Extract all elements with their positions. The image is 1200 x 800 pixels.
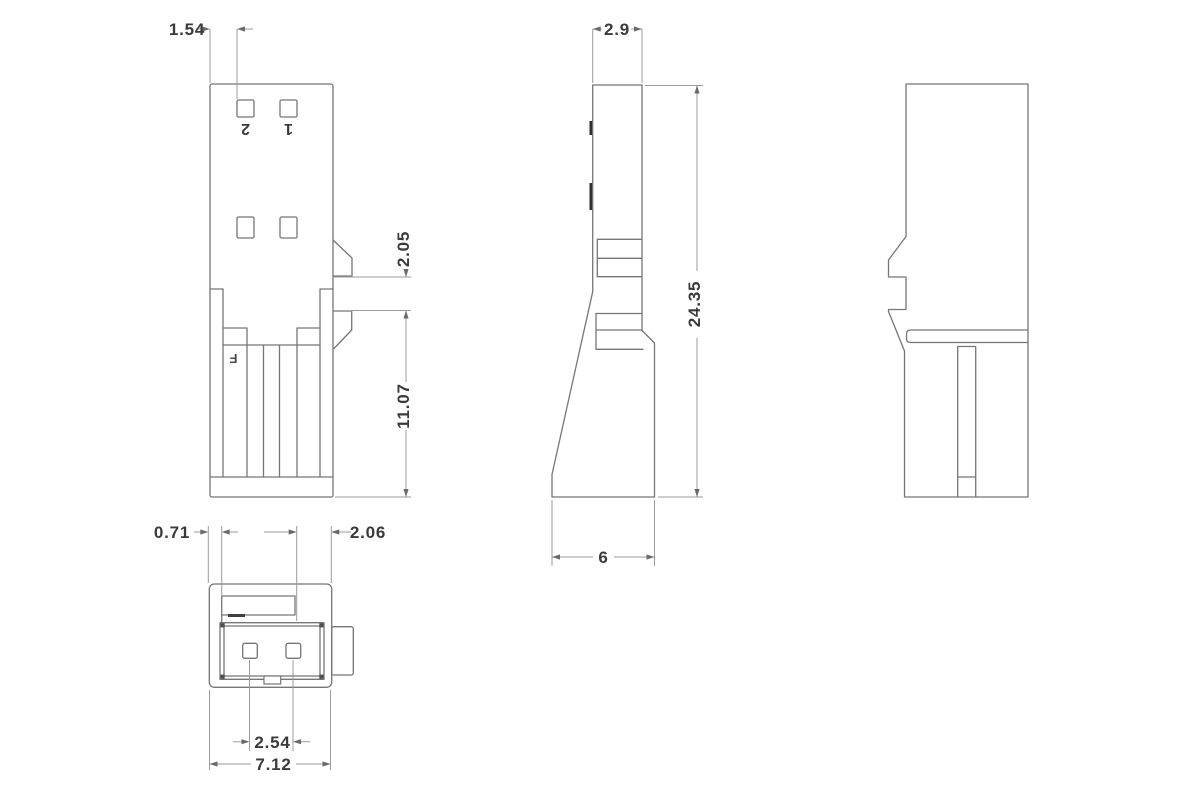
rear-retention-band [907,330,1028,343]
bottom-latch-recess [222,596,295,623]
dim-side-bottom-depth: 6 [552,500,655,567]
dim-0-71-arrow-right [222,529,230,534]
dim-1-54-text: 1.54 [169,20,205,39]
front-pin1-hole [280,100,297,117]
bottom-corner-post-tl [221,623,225,627]
dim-2-06-arrow-left [289,529,297,534]
front-contact-slots [247,345,297,477]
front-latch-upper [333,240,352,276]
dim-6-arrow-right [647,554,655,559]
dim-11-07-arrow-bottom [403,489,408,497]
dim-24-35-arrow-bottom [694,489,699,497]
dim-front-latch-gap-and-height: 2.05 11.07 [333,231,413,497]
mold-mark-label: F [229,351,237,366]
bottom-pin2-cavity [243,643,258,658]
bottom-corner-post-br [319,675,323,679]
dim-6-arrow-left [552,554,560,559]
dim-0-71-text: 0.71 [154,523,190,542]
dim-7-12-arrow-right [323,761,331,766]
bottom-corner-post-tr [319,623,323,627]
dim-bottom-pin-pitch: 2.54 [233,660,310,752]
bottom-pin1-cavity [286,643,301,658]
bottom-view [209,584,353,687]
dim-side-top-width: 2.9 [593,20,642,83]
dim-24-35-arrow-top [694,86,699,94]
front-mid-hole-left [237,217,254,238]
dim-2-06-arrow-right [331,529,339,534]
dim-1-54-extension-lines [210,29,237,99]
dim-1-54-arrow-right [237,26,245,31]
dim-2-06-text: 2.06 [350,523,386,542]
front-body-outline [210,84,333,497]
pin2-label: 2 [241,120,250,137]
dim-6-text: 6 [598,548,608,567]
pin1-label: 1 [284,120,293,137]
side-latch-box-lower [596,314,643,350]
front-inner-tabs [223,328,320,345]
dim-24-35-text: 24.35 [685,281,704,328]
rear-view [889,84,1029,497]
dim-2-54-arrow-left [242,739,250,744]
dim-2-05-text: 2.05 [394,231,413,267]
dim-11-07-text: 11.07 [394,383,413,429]
front-view: 2 1 F [210,84,352,497]
bottom-socket-outer [220,623,324,680]
dim-2-9-text: 2.9 [604,20,630,39]
bottom-body-outline [209,584,331,687]
bottom-polarity-notch [264,676,281,684]
dim-2-05-arrow-bottom [403,311,408,319]
front-mid-hole-right [280,217,297,238]
dim-bottom-edge-offset: 2.06 [264,523,386,621]
front-inner-walls [223,289,320,477]
dim-2-9-arrow-right [634,26,642,31]
dim-bottom-overall-width: 7.12 [210,690,331,774]
dim-2-06-extension-lines [297,526,332,621]
side-view [552,85,655,497]
side-outline [552,85,655,497]
bottom-socket-inner [224,626,320,676]
front-latch-lower [333,311,352,349]
dim-2-05-arrow-top [403,269,408,277]
dim-7-12-arrow-left [210,761,218,766]
dim-0-71-arrow-left [200,529,208,534]
dim-2-9-arrow-left [593,26,601,31]
bottom-corner-post-bl [221,675,225,679]
side-latch-box-upper [597,239,642,276]
engineering-drawing: 2 1 F 1.54 2.05 11.07 2.9 [0,0,1200,800]
front-pin2-hole [237,100,254,117]
bottom-side-tab [332,627,354,675]
dim-7-12-text: 7.12 [255,755,291,774]
drawing-svg: 2 1 F 1.54 2.05 11.07 2.9 [0,0,1200,800]
dim-2-54-text: 2.54 [254,733,290,752]
dim-front-pin-offset: 1.54 [169,20,253,99]
dim-2-54-arrow-right [293,739,301,744]
rear-center-slot [958,347,976,498]
